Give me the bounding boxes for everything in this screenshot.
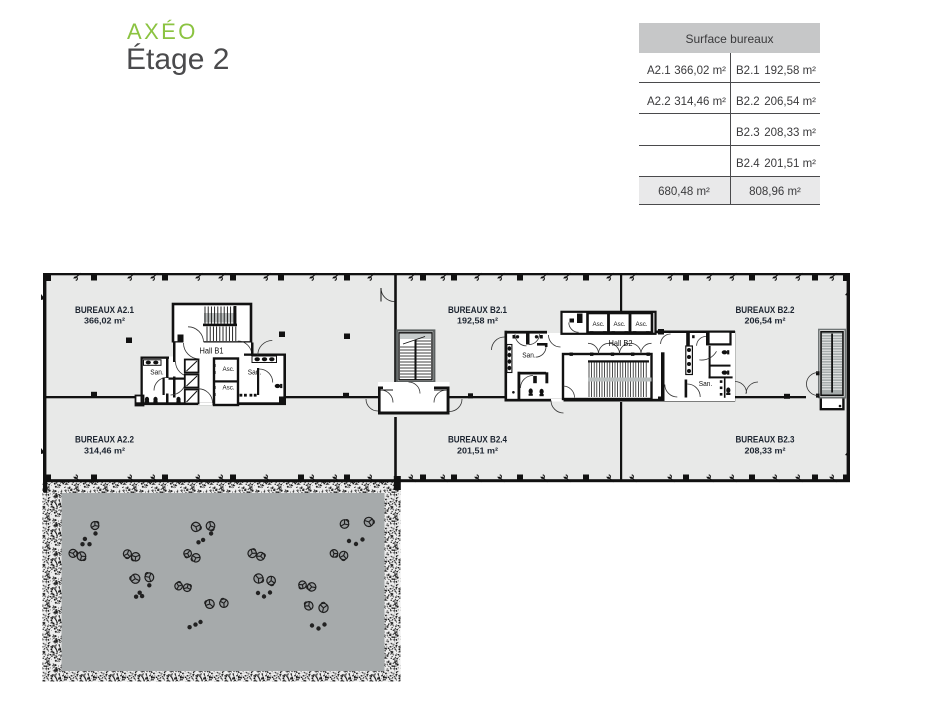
svg-text:San.: San. (248, 370, 262, 377)
svg-text:366,02 m²: 366,02 m² (84, 316, 125, 326)
svg-text:192,58 m²: 192,58 m² (457, 316, 498, 326)
svg-text:Hall B2: Hall B2 (609, 339, 633, 348)
svg-text:Asc.: Asc. (636, 321, 648, 328)
svg-text:314,46 m²: 314,46 m² (84, 445, 125, 455)
svg-text:Asc.: Asc. (593, 321, 605, 328)
svg-text:San.: San. (699, 381, 713, 388)
svg-text:208,33 m²: 208,33 m² (745, 445, 786, 455)
svg-text:206,54 m²: 206,54 m² (745, 316, 786, 326)
svg-text:BUREAUX B2.2: BUREAUX B2.2 (736, 304, 795, 315)
svg-text:Hall B1: Hall B1 (200, 347, 224, 356)
svg-text:BUREAUX A2.2: BUREAUX A2.2 (75, 434, 134, 445)
svg-text:BUREAUX B2.1: BUREAUX B2.1 (448, 304, 507, 315)
svg-text:BUREAUX B2.3: BUREAUX B2.3 (736, 434, 795, 445)
svg-text:San.: San. (522, 353, 536, 360)
svg-text:201,51 m²: 201,51 m² (457, 445, 498, 455)
svg-text:BUREAUX B2.4: BUREAUX B2.4 (448, 434, 508, 445)
svg-text:Asc.: Asc. (614, 321, 626, 328)
svg-text:Asc.: Asc. (223, 385, 235, 392)
svg-text:Asc.: Asc. (223, 366, 235, 373)
svg-text:San.: San. (150, 370, 164, 377)
svg-text:BUREAUX A2.1: BUREAUX A2.1 (75, 304, 134, 315)
